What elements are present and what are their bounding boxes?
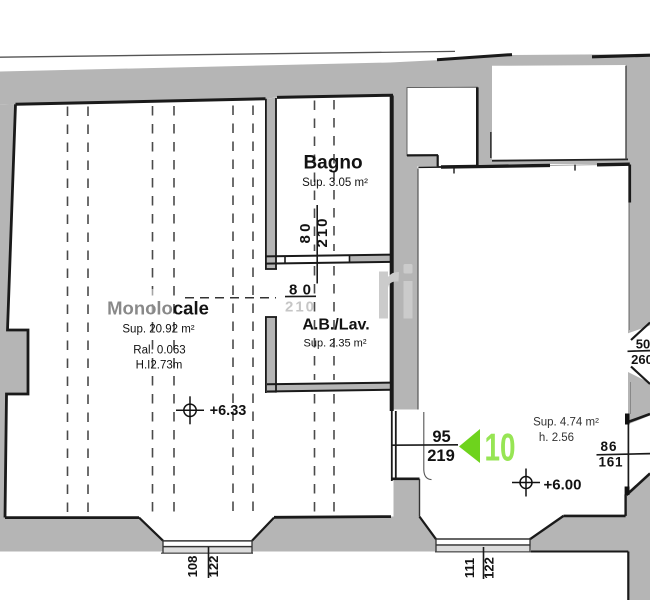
svg-text:Sup. 3.05 m²: Sup. 3.05 m² (302, 177, 368, 189)
svg-text:95: 95 (432, 428, 450, 446)
svg-text:161: 161 (599, 455, 623, 470)
svg-text:122: 122 (482, 557, 497, 579)
svg-text:+6.00: +6.00 (544, 477, 582, 494)
svg-text:50: 50 (636, 337, 650, 352)
svg-text:+6.33: +6.33 (210, 403, 247, 419)
svg-text:Ral. 0.063: Ral. 0.063 (133, 345, 185, 357)
svg-text:Sup. 4.74 m²: Sup. 4.74 m² (533, 417, 599, 429)
svg-text:219: 219 (427, 447, 455, 465)
svg-text:86: 86 (601, 439, 617, 454)
svg-text:Bagno: Bagno (303, 153, 362, 174)
svg-text:210: 210 (314, 219, 331, 248)
svg-text:122: 122 (206, 556, 221, 578)
svg-text:260: 260 (631, 352, 650, 367)
svg-text:10: 10 (485, 427, 516, 470)
svg-text:210: 210 (285, 299, 314, 316)
svg-text:H.I2.73m: H.I2.73m (136, 360, 183, 372)
svg-text:Sup. 20.92 m²: Sup. 20.92 m² (122, 324, 194, 336)
svg-text:h. 2.56: h. 2.56 (539, 432, 574, 444)
svg-text:108: 108 (185, 556, 200, 578)
svg-text:A.B./Lav.: A.B./Lav. (302, 317, 369, 334)
svg-text:111: 111 (462, 558, 477, 578)
svg-text:Sup. 2.35 m²: Sup. 2.35 m² (304, 338, 367, 350)
